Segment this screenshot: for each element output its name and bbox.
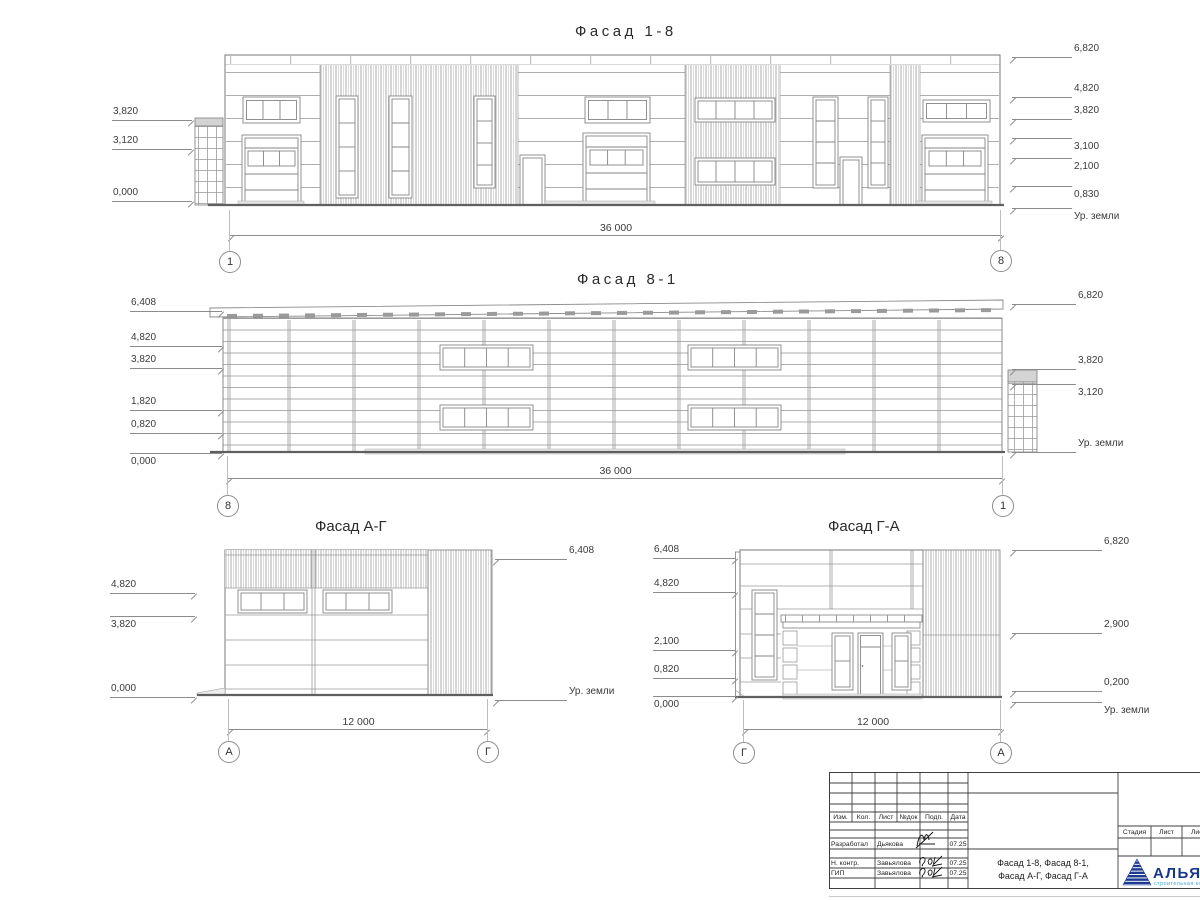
axis-extension-line	[1002, 456, 1003, 495]
dim-fag-ground-level: Ур. земли	[495, 700, 567, 701]
dim-f81-left-4820: 4,820	[130, 346, 222, 347]
dim-fga-right-6820: 6,820	[1012, 550, 1102, 551]
facade-1-8-title: Фасад 1-8	[575, 23, 677, 40]
dim-f81-left-0000: 0,000	[130, 453, 222, 454]
dim-f18-left-3820: 3,820	[112, 120, 192, 121]
dim-fga-width: 12 000	[744, 729, 1002, 730]
dim-f81-left-3820: 3,820	[130, 368, 222, 369]
signature-gip	[916, 865, 946, 878]
dim-f81-left-0820: 0,820	[130, 433, 222, 434]
company-logo-name: АЛЬЯНС	[1153, 865, 1200, 882]
dim-f18-right-0830: 0,830	[1012, 186, 1072, 187]
dim-fag-left-0000: 0,000	[110, 697, 195, 698]
axis-extension-line	[1000, 210, 1001, 250]
col-podp: Подп.	[920, 814, 948, 821]
alliance-logo-triangle-icon	[1122, 858, 1152, 886]
date-developer: 07.25	[948, 841, 968, 848]
dim-f18-right-2100: 2,100	[1012, 158, 1072, 159]
axis-bubble-1: 1	[219, 251, 241, 273]
axis-bubble-g: Г	[733, 742, 755, 764]
axis-extension-line	[1000, 700, 1001, 742]
dim-f81-right-6820: 6,820	[1012, 304, 1076, 305]
role-gip: ГИП	[831, 870, 844, 877]
dim-f18-right-3100: 3,100	[1012, 138, 1072, 139]
title-block: Изм. Кол. Лист №док Подп. Дата Разработа…	[829, 772, 1200, 889]
dim-f81-right-3820: 3,820	[1012, 369, 1076, 370]
dim-f18-left-0000: 0,000	[112, 201, 192, 202]
axis-extension-line	[487, 699, 488, 741]
dim-f18-right-3820: 3,820	[1012, 119, 1072, 120]
dim-f18-ground-level: Ур. земли	[1012, 208, 1072, 209]
dim-fga-right-0200: 0,200	[1012, 691, 1102, 692]
name-developer: Дьякова	[877, 841, 903, 848]
axis-bubble-a: А	[218, 741, 240, 763]
axis-label: 1	[1000, 500, 1006, 512]
dim-f18-width: 36 000	[230, 235, 1002, 236]
dim-fga-left-0000: 0,000	[653, 696, 736, 697]
col-kol: Кол.	[852, 814, 875, 821]
dim-fga-left-6408: 6,408	[653, 558, 736, 559]
axis-extension-line	[227, 456, 228, 495]
dim-fga-left-0820: 0,820	[653, 678, 736, 679]
dim-fag-width: 12 000	[229, 729, 488, 730]
axis-bubble-a: А	[990, 742, 1012, 764]
dim-fga-left-4820: 4,820	[653, 592, 736, 593]
col-data: Дата	[948, 814, 968, 821]
dim-fag-right-6408: 6,408	[495, 559, 567, 560]
role-ncontrol: Н. контр.	[831, 860, 859, 867]
signature-developer	[913, 828, 941, 850]
col-ndok: №док	[897, 814, 920, 821]
sheet-frame-bottom	[829, 896, 1200, 897]
col-izm: Изм.	[829, 814, 852, 821]
facade-8-1-title: Фасад 8-1	[577, 271, 679, 288]
date-ncontrol: 07.25	[948, 860, 968, 867]
axis-extension-line	[228, 699, 229, 741]
axis-bubble-8: 8	[217, 495, 239, 517]
axis-bubble-8: 8	[990, 250, 1012, 272]
facade-g-a-title: Фасад Г-А	[828, 518, 900, 535]
axis-label: Г	[485, 746, 491, 758]
facade-g-a-drawing	[735, 546, 1005, 701]
date-gip: 07.25	[948, 870, 968, 877]
axis-label: 8	[225, 500, 231, 512]
dim-fag-left-4820: 4,820	[110, 593, 195, 594]
facade-8-1-drawing	[205, 296, 1040, 461]
dim-fga-left-2100: 2,100	[653, 650, 736, 651]
company-logo-subtitle: строительная компания	[1154, 881, 1200, 887]
facade-a-g-title: Фасад А-Г	[315, 518, 387, 535]
name-ncontrol: Завьялова	[877, 860, 911, 867]
col-list: Лист	[875, 814, 897, 821]
role-developer: Разработал	[831, 841, 868, 848]
axis-label: Г	[741, 747, 747, 759]
dim-f81-right-3120: 3,120	[1012, 384, 1076, 385]
drawing-title-line2: Фасад А-Г, Фасад Г-А	[968, 872, 1118, 882]
dim-fag-left-3820: 3,820	[110, 616, 195, 617]
axis-extension-line	[743, 700, 744, 742]
col-sheet: Лист	[1151, 829, 1182, 836]
dim-f81-width: 36 000	[228, 478, 1003, 479]
dim-f81-left-6408: 6,408	[130, 311, 222, 312]
axis-extension-line	[229, 210, 230, 251]
dim-fga-ground-level: Ур. земли	[1012, 702, 1102, 703]
axis-bubble-1: 1	[992, 495, 1014, 517]
axis-label: А	[225, 746, 232, 758]
col-sheets: Листов	[1182, 829, 1200, 836]
dim-f81-left-1820: 1,820	[130, 410, 222, 411]
axis-label: 1	[227, 256, 233, 268]
facade-1-8-drawing	[190, 50, 1010, 212]
col-stage: Стадия	[1118, 829, 1151, 836]
axis-label: А	[997, 747, 1004, 759]
drawing-title-line1: Фасад 1-8, Фасад 8-1,	[968, 859, 1118, 869]
dim-f18-right-4820: 4,820	[1012, 97, 1072, 98]
dim-f18-left-3120: 3,120	[112, 149, 192, 150]
facade-a-g-drawing	[195, 546, 495, 701]
dim-fga-right-2900: 2,900	[1012, 633, 1102, 634]
name-gip: Завьялова	[877, 870, 911, 877]
axis-label: 8	[998, 255, 1004, 267]
axis-bubble-g: Г	[477, 741, 499, 763]
dim-f81-ground-level: Ур. земли	[1012, 452, 1076, 453]
dim-f18-right-6820: 6,820	[1012, 57, 1072, 58]
